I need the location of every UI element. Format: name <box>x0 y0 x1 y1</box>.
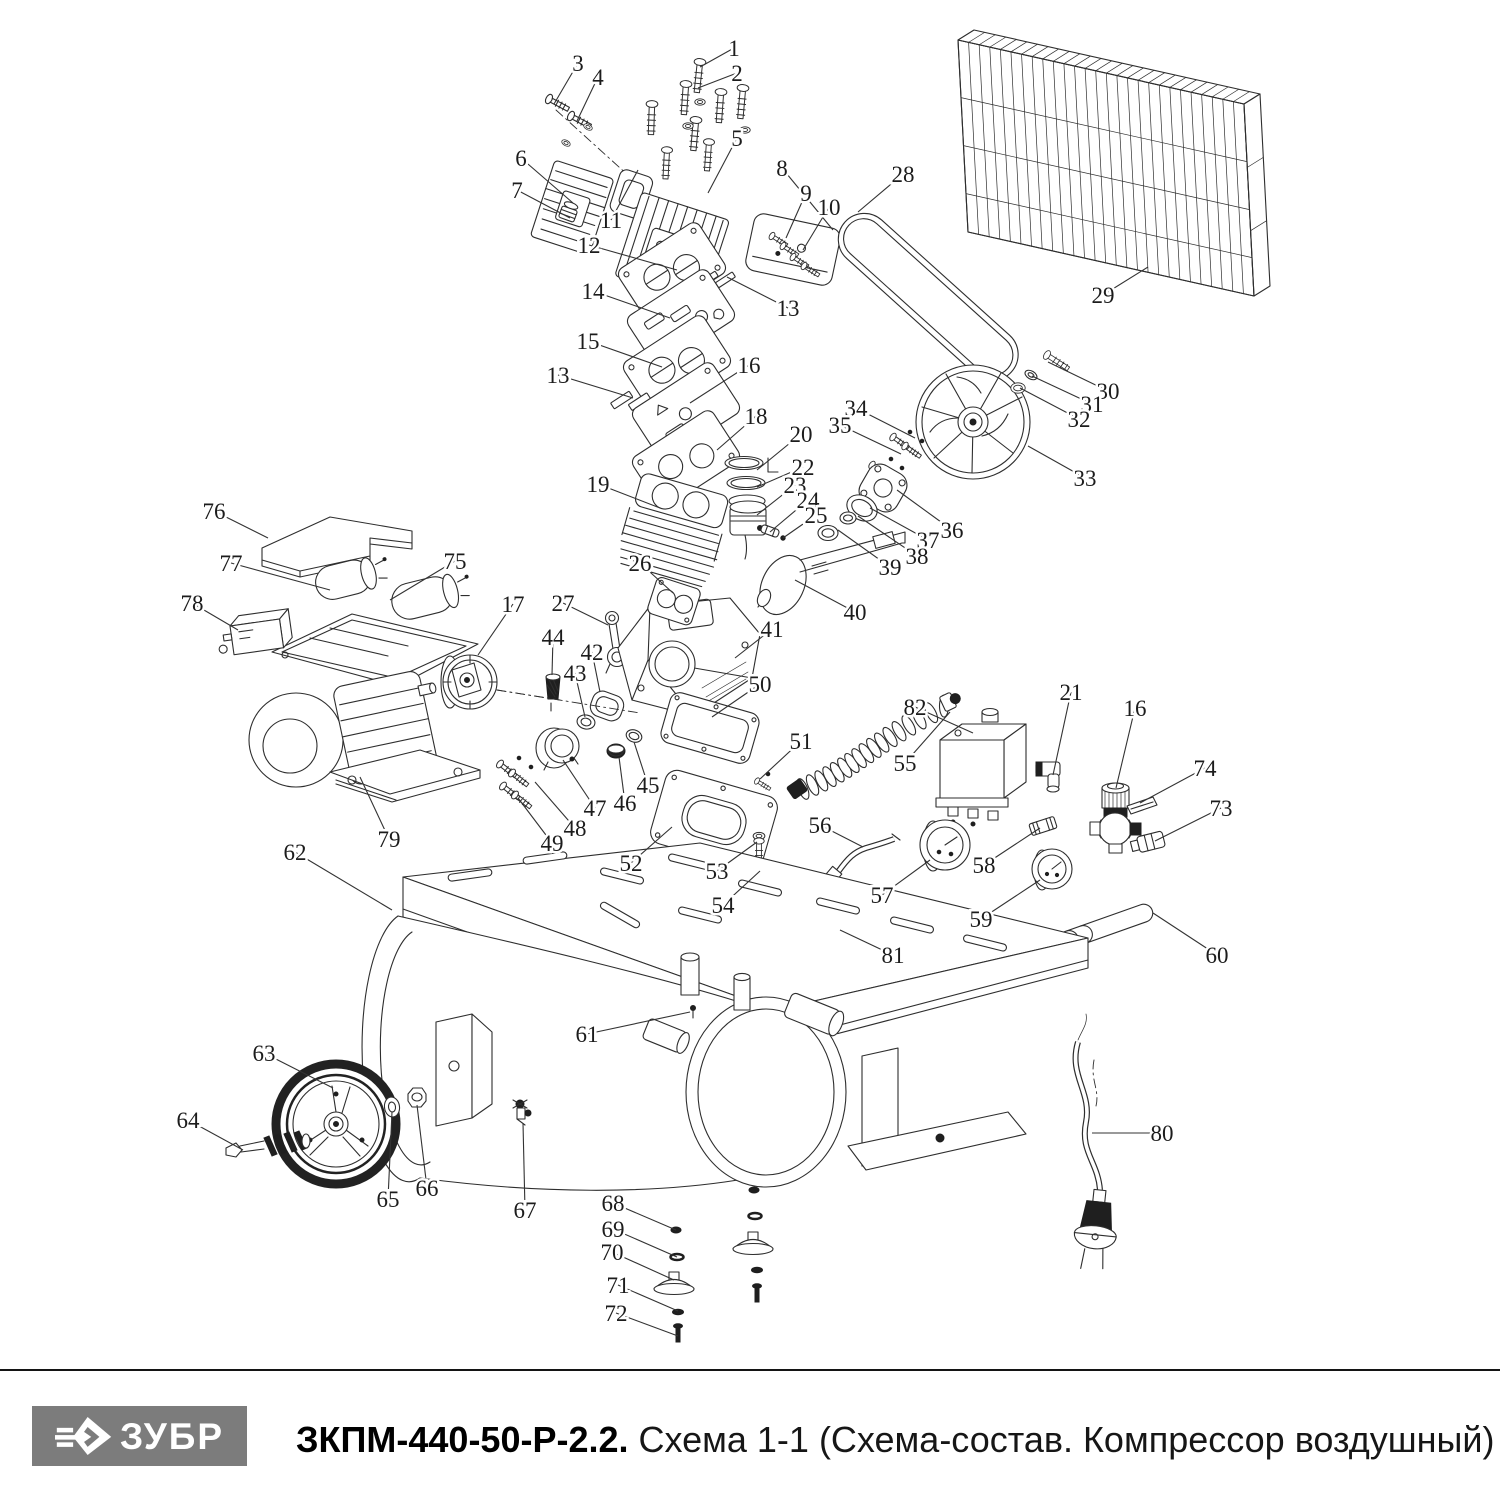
callout-79: 79 <box>378 827 401 852</box>
part-power-cord <box>1071 1014 1121 1272</box>
callout-73: 73 <box>1210 796 1233 821</box>
callout-8: 8 <box>776 156 788 181</box>
exploded-diagram: 1234567891011121313141516161718192021222… <box>0 0 1500 1370</box>
callout-45: 45 <box>637 773 660 798</box>
callout-25: 25 <box>805 503 828 528</box>
document-title: ЗКПМ-440-50-Р-2.2. Схема 1-1 (Схема-сост… <box>296 1420 1494 1460</box>
callout-19: 19 <box>587 472 610 497</box>
callout-32: 32 <box>1068 407 1091 432</box>
callout-71: 71 <box>607 1273 630 1298</box>
callout-43: 43 <box>564 661 587 686</box>
callout-6: 6 <box>515 146 527 171</box>
callout-38: 38 <box>906 544 929 569</box>
callout-62: 62 <box>284 840 307 865</box>
callout-9: 9 <box>800 181 812 206</box>
shaft-seal <box>840 512 856 524</box>
callout-41: 41 <box>761 617 784 642</box>
callout-77: 77 <box>220 551 243 576</box>
callout-59: 59 <box>970 907 993 932</box>
oil-nut <box>576 713 597 730</box>
part-motor-pulley <box>441 655 497 709</box>
part-flywheel <box>916 365 1030 479</box>
callout-39: 39 <box>879 555 902 580</box>
callout-16: 16 <box>738 353 761 378</box>
callout-51: 51 <box>790 729 813 754</box>
footer-divider <box>0 1369 1500 1371</box>
callout-75: 75 <box>444 549 467 574</box>
part-piston-group <box>725 457 785 560</box>
callout-18: 18 <box>745 404 768 429</box>
gauge-large <box>920 820 970 871</box>
callout-35: 35 <box>829 413 852 438</box>
callout-20: 20 <box>790 422 813 447</box>
zubr-logo: ЗУБР <box>32 1406 247 1466</box>
part-elbow-fitting <box>1036 762 1060 792</box>
callout-13: 13 <box>547 363 570 388</box>
callout-54: 54 <box>712 893 736 918</box>
regulator-knob <box>1102 783 1129 808</box>
callout-40: 40 <box>844 600 867 625</box>
zubr-logo-icon <box>55 1414 113 1458</box>
callout-61: 61 <box>576 1022 599 1047</box>
callout-48: 48 <box>564 816 587 841</box>
callout-72: 72 <box>605 1301 628 1326</box>
foot-column-right <box>733 1187 773 1302</box>
zubr-logo-text: ЗУБР <box>120 1418 224 1455</box>
part-discharge-hose <box>786 689 963 801</box>
callout-53: 53 <box>706 859 729 884</box>
part-bearing-flange <box>818 430 924 540</box>
callout-33: 33 <box>1074 466 1097 491</box>
callout-78: 78 <box>181 591 204 616</box>
callout-82: 82 <box>904 695 927 720</box>
callout-57: 57 <box>871 883 894 908</box>
callout-66: 66 <box>416 1176 439 1201</box>
part-axle-nut <box>408 1088 426 1107</box>
breather-plug <box>546 674 560 711</box>
callout-7: 7 <box>511 178 523 203</box>
callout-67: 67 <box>514 1198 537 1223</box>
oil-plug <box>607 744 625 758</box>
callout-60: 60 <box>1206 943 1229 968</box>
callout-56: 56 <box>809 813 832 838</box>
callout-55: 55 <box>894 751 917 776</box>
callout-65: 65 <box>377 1187 400 1212</box>
callout-14: 14 <box>582 279 606 304</box>
doc-number: ЗКПМ-440-50-Р-2.2. <box>296 1419 629 1460</box>
foot-column-left <box>654 1227 694 1342</box>
callout-28: 28 <box>892 162 915 187</box>
callout-27: 27 <box>552 591 575 616</box>
callout-52: 52 <box>620 851 643 876</box>
callout-69: 69 <box>602 1217 625 1242</box>
diagram-canvas: 1234567891011121313141516161718192021222… <box>0 0 1500 1500</box>
callout-64: 64 <box>177 1108 201 1133</box>
callout-49: 49 <box>541 831 564 856</box>
callout-2: 2 <box>731 61 743 86</box>
callout-4: 4 <box>592 65 604 90</box>
part-unloader-pipe <box>826 834 900 882</box>
callout-70: 70 <box>601 1240 624 1265</box>
callout-76: 76 <box>203 499 226 524</box>
callout-12: 12 <box>578 233 601 258</box>
callout-21: 21 <box>1060 680 1083 705</box>
callout-29: 29 <box>1092 283 1115 308</box>
callout-17: 17 <box>502 592 525 617</box>
callout-74: 74 <box>1194 756 1218 781</box>
callout-5: 5 <box>731 126 743 151</box>
callout-10: 10 <box>818 195 841 220</box>
callout-44: 44 <box>542 625 566 650</box>
callout-58: 58 <box>973 853 996 878</box>
callout-36: 36 <box>941 518 964 543</box>
oil-filler <box>536 728 579 770</box>
part-valve-plates <box>611 220 743 511</box>
callout-13: 13 <box>777 296 800 321</box>
callout-1: 1 <box>728 36 740 61</box>
callout-68: 68 <box>602 1191 625 1216</box>
callout-47: 47 <box>584 796 607 821</box>
part-flywheel-bolt <box>1011 349 1071 393</box>
part-belt-guard-grille <box>958 30 1270 296</box>
callout-50: 50 <box>749 672 772 697</box>
callout-80: 80 <box>1151 1121 1174 1146</box>
callout-26: 26 <box>629 551 652 576</box>
part-pressure-switch <box>936 709 1060 827</box>
callout-15: 15 <box>577 329 600 354</box>
callout-81: 81 <box>882 943 905 968</box>
callout-11: 11 <box>600 208 622 233</box>
callout-63: 63 <box>253 1041 276 1066</box>
doc-subtitle: Схема 1-1 (Схема-состав. Компрессор возд… <box>629 1419 1495 1460</box>
callout-leader-62 <box>295 852 392 910</box>
gauge-small <box>1032 849 1072 890</box>
o-ring <box>624 728 643 745</box>
part-lever <box>1127 797 1157 814</box>
callout-46: 46 <box>614 791 637 816</box>
callout-16: 16 <box>1124 696 1147 721</box>
callout-3: 3 <box>572 51 584 76</box>
part-rubber-feet <box>654 1187 773 1342</box>
switch-cap <box>982 709 998 723</box>
part-regulator <box>1029 783 1166 854</box>
cover-plate-50 <box>659 690 762 765</box>
